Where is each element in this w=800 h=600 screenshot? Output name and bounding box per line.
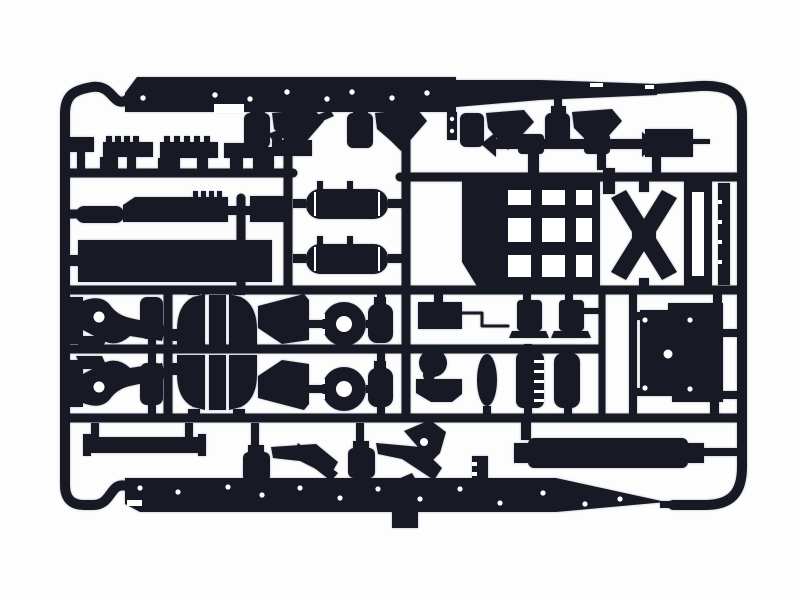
- bar-notch: [472, 462, 477, 466]
- bracket-b-leg: [127, 157, 136, 169]
- bracket-d-leg: [253, 158, 262, 169]
- hanger1-plate: [68, 297, 83, 344]
- bracket-b-tooth1: [106, 136, 112, 142]
- bracket-blob-bump: [423, 369, 435, 381]
- rivet-hole: [297, 485, 302, 490]
- box-lower-stub: [70, 255, 78, 266]
- sprue-photo: Black plastic model kit sprue with truck…: [0, 0, 800, 600]
- rivet-hole: [175, 489, 180, 494]
- reservoir-2-stub-b: [377, 407, 385, 415]
- brake-cap-1: [250, 106, 265, 114]
- rivet-hole: [247, 96, 252, 101]
- hanging-box: [392, 496, 418, 528]
- bset1-cylinder: [243, 452, 270, 482]
- rivet-hole: [389, 95, 394, 100]
- left-cylinder-part: [76, 206, 124, 223]
- reservoir-1-stub: [377, 292, 385, 298]
- bracket-b: [103, 142, 153, 157]
- bumper-stub-r: [185, 423, 193, 438]
- tank2-stub-l: [293, 254, 306, 263]
- tank-seam: [378, 247, 380, 271]
- tank-seam: [378, 192, 380, 216]
- bracket-d: [224, 143, 268, 158]
- rail-taper-runner: [660, 501, 676, 508]
- ribbed-cyl-stub-t: [524, 344, 532, 352]
- bracket-a-leg: [77, 152, 85, 170]
- plate-hole: [687, 386, 692, 391]
- rail-slot-2: [645, 85, 654, 89]
- smooth-cyl-stub-t: [564, 345, 572, 353]
- small-box-part: [250, 196, 286, 222]
- junction-box: [418, 302, 462, 329]
- slot-bar-part: [447, 112, 457, 140]
- reservoir-1-knob: [374, 297, 386, 305]
- bracket-e-tooth2: [286, 134, 292, 140]
- rivet-hole: [582, 501, 587, 506]
- sprue-svg: Black plastic model kit sprue with truck…: [0, 0, 800, 600]
- slot-bar-hole: [450, 129, 454, 133]
- bumper-stub-l: [91, 423, 99, 438]
- muffler-cap-l: [514, 443, 529, 463]
- housing-column-upper: [209, 295, 226, 349]
- rivet-hole: [324, 96, 329, 101]
- rivet-hole: [417, 496, 422, 501]
- hub-hole: [336, 381, 352, 397]
- rivet-hole: [617, 496, 622, 501]
- plate-stub-4: [710, 402, 719, 415]
- rivet-hole: [497, 500, 502, 505]
- muffler-body: [528, 438, 688, 468]
- x-crossmember-center: [632, 224, 656, 250]
- small-cylinder-1: [140, 297, 163, 339]
- air-tank-2: [306, 244, 388, 274]
- grid-hole: [542, 255, 565, 277]
- rivet-hole: [259, 492, 264, 497]
- rivet-hole: [212, 92, 217, 97]
- bset2-cap: [353, 441, 369, 449]
- plate-stub-1: [636, 312, 642, 320]
- housing-column-lower: [209, 355, 226, 410]
- box-tooth4: [217, 191, 222, 198]
- strip-notch: [718, 260, 722, 264]
- bset2-stub: [356, 423, 364, 442]
- hub-notch: [321, 329, 325, 334]
- plate-stub-6: [723, 391, 738, 399]
- bracket-c-foot: [158, 158, 180, 169]
- small-cyl1-stub: [148, 339, 156, 345]
- bar-notch: [472, 472, 477, 476]
- rib-notch: [534, 380, 544, 383]
- tank2-stub-r: [388, 254, 402, 263]
- lens-part: [477, 354, 497, 406]
- reservoir-2: [368, 368, 393, 407]
- muffler-stub-r: [703, 448, 740, 456]
- junction-box-stub: [434, 294, 443, 302]
- hanger2-plate: [68, 360, 83, 407]
- box-stub-1: [228, 206, 237, 215]
- bracket-b-tooth4: [133, 136, 139, 142]
- rail-notch: [214, 104, 244, 113]
- front-axle-bar: [494, 139, 644, 149]
- ladder-hole: [692, 192, 704, 276]
- rivet-hole: [540, 490, 545, 495]
- strip-notch: [718, 240, 722, 244]
- hook-curl: [420, 438, 428, 446]
- tank1-nipple-1: [317, 181, 323, 190]
- small-cylinder-2: [140, 363, 163, 405]
- grid-hole: [576, 255, 592, 277]
- bracket-b-foot: [100, 157, 118, 169]
- bset1-stub: [251, 423, 259, 446]
- bracket-c-tooth4: [194, 136, 200, 142]
- bumper-cap-l: [83, 434, 91, 456]
- ribbed-strip: [718, 183, 730, 285]
- housing-tab-4: [233, 409, 245, 416]
- bracket-c: [160, 142, 218, 158]
- axle-stub-b: [597, 149, 606, 170]
- grid-hole: [542, 190, 565, 205]
- small-cyl2-stub-t: [148, 353, 156, 363]
- ribbed-cyl-stub-b: [524, 408, 532, 416]
- box-stub-3: [286, 206, 292, 215]
- bracket-b-tooth3: [124, 136, 130, 142]
- plate-stub-2: [636, 388, 642, 396]
- canister-2-stub: [565, 292, 573, 300]
- bracket-d-foot: [230, 158, 243, 169]
- canister-1: [517, 300, 542, 331]
- brake-cylinder-1: [244, 113, 270, 148]
- canister-1-stub: [523, 292, 531, 300]
- x-stub-bottom: [639, 278, 649, 291]
- box-tooth1: [193, 191, 198, 198]
- tank2-nipple-1: [317, 236, 323, 245]
- rail-bottom-notch: [127, 500, 142, 506]
- rib-notch: [534, 390, 544, 393]
- canister-1-feet: [509, 331, 549, 338]
- tank-seam: [314, 247, 316, 271]
- hub-notch: [321, 314, 325, 319]
- air-tank-1: [306, 189, 388, 219]
- rivet-hole: [284, 89, 289, 94]
- brake-cylinder-2: [347, 113, 373, 148]
- bracket-a: [68, 137, 94, 152]
- bracket-e: [272, 140, 312, 156]
- bracket-c-tooth3: [184, 136, 190, 142]
- small-bar-part: [603, 168, 615, 194]
- bset1-cap: [248, 445, 264, 453]
- hanger-hole: [94, 312, 105, 323]
- box-tooth2: [201, 191, 206, 198]
- axle-stub-a: [528, 149, 539, 174]
- brake-cap-2: [353, 106, 368, 114]
- grid-hole: [542, 218, 565, 242]
- tank2-nipple-2: [347, 236, 353, 245]
- strip-notch: [718, 220, 722, 224]
- housing-tab-1: [188, 288, 200, 295]
- reservoir-2-knob: [374, 361, 386, 369]
- bracket-e-tooth3: [296, 134, 302, 140]
- strip-notch: [718, 200, 722, 204]
- tank-seam: [314, 192, 316, 216]
- bracket-e-tooth1: [276, 134, 282, 140]
- plate-hole: [642, 385, 647, 390]
- brake-stub-4: [554, 96, 562, 108]
- flag-pin-left: [631, 139, 645, 144]
- mudflap-plate: [640, 303, 723, 402]
- hub2-stub-l: [309, 385, 323, 393]
- bracket-c-leg: [197, 158, 208, 169]
- housing-tab-3: [188, 409, 200, 416]
- bracket-c-tooth1: [164, 136, 170, 142]
- bracket-c-tooth5: [204, 136, 210, 142]
- rivet-hole: [424, 90, 429, 95]
- housing-tab-2: [233, 288, 245, 295]
- tank1-nipple-2: [347, 181, 353, 190]
- lens-stub: [483, 406, 491, 415]
- rivet-hole: [225, 484, 230, 489]
- rivet-hole: [137, 485, 142, 490]
- tank1-stub-r: [388, 199, 402, 208]
- canister-2-side-stub: [584, 308, 602, 314]
- grid-hole: [576, 190, 592, 205]
- reservoir-2-stub-t: [377, 353, 385, 362]
- plate-hole: [642, 317, 647, 322]
- muffler-cap-r: [688, 443, 704, 463]
- bumper-cap-r: [198, 434, 206, 456]
- battery-box-lower: [78, 240, 272, 282]
- rivet-hole: [375, 486, 380, 491]
- plate-stub-5: [723, 329, 738, 337]
- flag-pin-right: [693, 139, 710, 144]
- chassis-rail-top-main: [125, 77, 456, 112]
- hub-notch: [321, 379, 325, 384]
- canister-2-feet: [551, 331, 591, 338]
- hub1-stub-l: [309, 320, 323, 328]
- flag-plate: [645, 129, 693, 157]
- bracket-c-tooth2: [174, 136, 180, 142]
- small-cyl2-stub-b: [148, 405, 156, 414]
- box-stub-2: [245, 206, 250, 215]
- muffler-stub-up: [521, 420, 531, 440]
- bracket-b-tooth2: [115, 136, 121, 142]
- bset2-cylinder: [348, 448, 375, 478]
- grid-hole: [508, 255, 531, 277]
- x-stub-top: [639, 181, 649, 192]
- brake-cylinder-3: [460, 113, 484, 147]
- box-tooth3: [209, 191, 214, 198]
- rivet-hole: [337, 495, 342, 500]
- rib-notch: [534, 370, 544, 373]
- rivet-hole: [457, 486, 462, 491]
- hanger-hole: [94, 382, 105, 393]
- rib-notch: [534, 399, 544, 402]
- battery-box-upper: [123, 197, 228, 222]
- smooth-cylinder: [554, 353, 580, 408]
- hub-hole: [336, 316, 352, 332]
- plate-center-hole: [664, 350, 673, 359]
- plate-stub-3: [713, 294, 722, 304]
- grid-hole: [576, 218, 592, 242]
- hub-notch: [321, 394, 325, 399]
- rivet-hole: [140, 95, 145, 100]
- flag-stub: [652, 157, 661, 174]
- plate-hole: [687, 317, 692, 322]
- reservoir-1: [368, 304, 393, 343]
- rib-notch: [534, 360, 544, 363]
- smooth-cyl-stub-b: [564, 408, 572, 416]
- rivet-hole: [349, 89, 354, 94]
- grid-hole: [508, 190, 531, 205]
- slot-bar-hole: [450, 117, 454, 121]
- bumper-bar: [86, 437, 204, 453]
- tank1-stub-l: [293, 199, 306, 208]
- rail-slot-1: [590, 83, 603, 87]
- canister-2: [559, 300, 584, 331]
- grid-hole: [508, 218, 531, 242]
